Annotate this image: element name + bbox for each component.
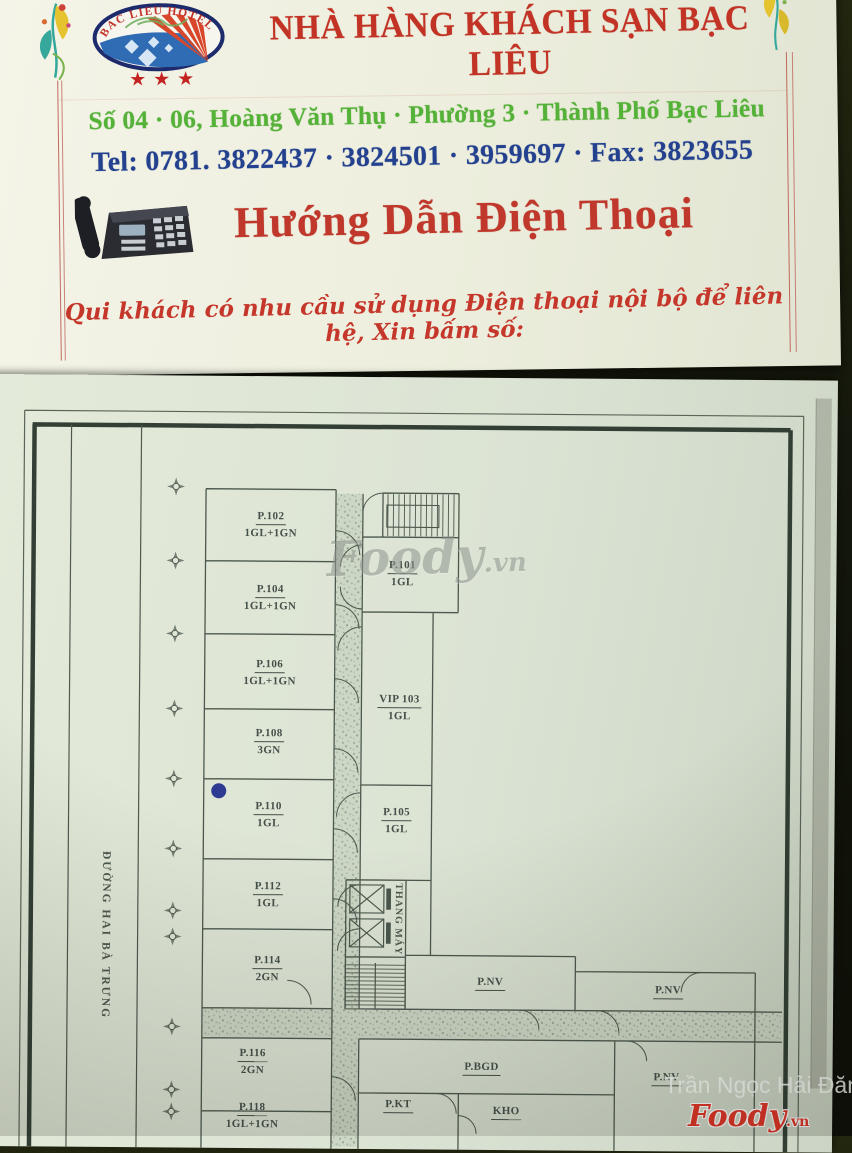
foody-logo-brand: Foody bbox=[688, 1099, 786, 1134]
foody-watermark-brand: Foody bbox=[326, 528, 484, 588]
room-label: P.1021GL+1GN bbox=[233, 510, 309, 541]
foody-watermark-domain: .vn bbox=[483, 548, 527, 579]
foody-logo-domain: .vn bbox=[786, 1114, 809, 1130]
three-stars: ★★★ bbox=[115, 68, 215, 91]
horizontal-corridor bbox=[203, 1009, 781, 1042]
room-label: P.1041GL+1GN bbox=[232, 583, 308, 614]
room-label: P.1162GN bbox=[214, 1047, 290, 1078]
floor-plan-page: ĐƯỜNG HAI BÀ TRƯNG THANG MÁY P.1021GL+1G… bbox=[0, 374, 838, 1153]
letterhead-card: BAC LIEU HOTEL ★★★ NHÀ HÀNG KHÁCH SẠN BẠ… bbox=[0, 0, 841, 376]
author-name: Trần Ngọc Hải Đăng bbox=[664, 1072, 852, 1099]
hotel-logo: BAC LIEU HOTEL bbox=[90, 1, 229, 73]
room-label: P.NV bbox=[452, 976, 528, 992]
instruction-note: Qui khách có nhu cầu sử dụng Điện thoại … bbox=[52, 282, 797, 354]
room-label: VIP 1031GL bbox=[361, 693, 437, 724]
room-label: P.1142GN bbox=[229, 954, 305, 985]
phone-fax-line: Tel: 0781. 3822437 · 3824501 · 3959697 ·… bbox=[62, 134, 782, 180]
author-watermark: Trần Ngọc Hải Đăng Foody.vn bbox=[664, 1072, 852, 1134]
room-label: KHO bbox=[468, 1105, 544, 1121]
page-title: NHÀ HÀNG KHÁCH SẠN BẠC LIÊU bbox=[240, 0, 779, 89]
foody-logo: Foody.vn bbox=[688, 1099, 852, 1134]
floral-decoration-icon bbox=[20, 0, 91, 82]
telephone-icon bbox=[75, 186, 198, 266]
room-label: P.1061GL+1GN bbox=[232, 658, 308, 689]
room-label: P.1181GL+1GN bbox=[214, 1101, 290, 1132]
room-label: P.KT bbox=[360, 1098, 436, 1114]
elevator-label: THANG MÁY bbox=[392, 883, 404, 955]
room-label: P.1121GL bbox=[230, 880, 306, 911]
room-label: P.BGD bbox=[444, 1061, 520, 1077]
hotel-address: Số 04 · 06, Hoàng Văn Thụ · Phường 3 · T… bbox=[81, 93, 771, 136]
foody-watermark: Foody.vn bbox=[326, 527, 527, 588]
phone-guide-heading: Hướng Dẫn Điện Thoại bbox=[181, 186, 748, 249]
floor-plan-drawing bbox=[0, 374, 838, 1153]
room-label: P.1051GL bbox=[358, 806, 434, 837]
street-label: ĐƯỜNG HAI BÀ TRƯNG bbox=[99, 851, 112, 1019]
room-label: P.1083GN bbox=[231, 727, 307, 758]
street-lines bbox=[66, 425, 142, 1148]
grid-markers bbox=[162, 477, 185, 1120]
room-label: P.1101GL bbox=[230, 800, 306, 831]
blue-dot-marker bbox=[211, 783, 226, 798]
room-label: P.NV bbox=[630, 984, 706, 1000]
